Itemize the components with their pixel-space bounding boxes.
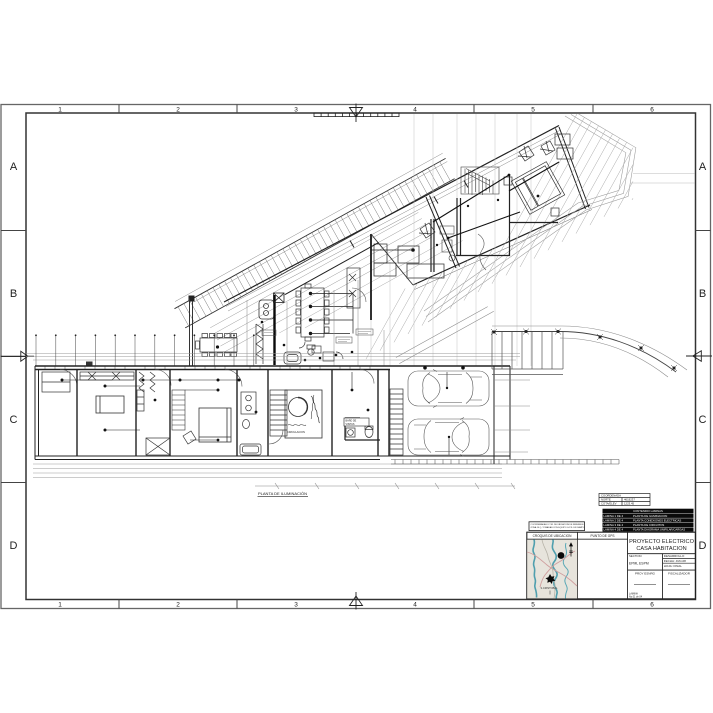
svg-text:VISITAS: VISITAS [346, 423, 355, 426]
svg-text:CIRCULACION: CIRCULACION [287, 430, 305, 434]
svg-text:PLANTA DE ILUMINACION: PLANTA DE ILUMINACION [633, 514, 667, 518]
svg-text:A: A [699, 161, 707, 173]
svg-text:PLANTA DE CIRCUITOS: PLANTA DE CIRCUITOS [633, 523, 664, 527]
svg-text:B: B [10, 288, 17, 300]
svg-text:LAMINA 3 DE 4: LAMINA 3 DE 4 [604, 523, 624, 527]
svg-text:CROQUIS DE UBICACION: CROQUIS DE UBICACION [533, 534, 572, 538]
svg-text:D: D [699, 540, 707, 552]
svg-text:CASA HABITACION: CASA HABITACION [636, 546, 686, 552]
svg-text:2: 2 [176, 107, 180, 114]
svg-text:DESARROLLO: DESARROLLO [664, 554, 685, 558]
svg-text:5: 5 [531, 602, 535, 609]
svg-text:2: 2 [176, 602, 180, 609]
svg-text:C: C [699, 414, 707, 426]
svg-text:D: D [10, 540, 18, 552]
svg-text:PUNTO DE GPS: PUNTO DE GPS [590, 534, 614, 538]
svg-text:COORDENADAS U.T.M. DE UBICACIO: COORDENADAS U.T.M. DE UBICACION DE INMUE… [531, 523, 585, 526]
svg-text:PROY ESNRG: PROY ESNRG [635, 572, 656, 576]
svg-text:1223.45: 1223.45 [624, 502, 635, 506]
svg-text:S.CRISTOBAL: S.CRISTOBAL [540, 586, 558, 590]
svg-text:4: 4 [413, 107, 417, 114]
svg-text:ZONA 14 Q, TOMADAS CON EQUIPO: ZONA 14 Q, TOMADAS CON EQUIPO G.P.S. EN … [531, 526, 585, 529]
svg-text:3: 3 [294, 602, 298, 609]
svg-text:CONTENIDO LAMINAS: CONTENIDO LAMINAS [633, 509, 663, 513]
svg-text:EPML ESPM: EPML ESPM [629, 562, 649, 566]
svg-text:5: 5 [531, 107, 535, 114]
svg-text:FISCALIZADOR: FISCALIZADOR [668, 572, 691, 576]
svg-text:1: 1 [58, 602, 62, 609]
svg-text:C: C [10, 414, 18, 426]
svg-text:B: B [699, 288, 706, 300]
svg-text:SECTION:: SECTION: [629, 554, 642, 558]
svg-text:PROYECTO ELECTRICO: PROYECTO ELECTRICO [629, 539, 695, 545]
svg-text:LAMINA 2 DE 4: LAMINA 2 DE 4 [604, 519, 624, 523]
svg-text:6: 6 [650, 602, 654, 609]
svg-text:PLANTA DIAGRAMA UNIFILAR/CARGA: PLANTA DIAGRAMA UNIFILAR/CARGAS [633, 528, 685, 532]
svg-text:6: 6 [650, 107, 654, 114]
svg-text:FECHA: JUN-08: FECHA: JUN-08 [664, 559, 686, 563]
svg-text:3: 3 [294, 107, 298, 114]
svg-text:PLANTA DE ILUMINACIÓN: PLANTA DE ILUMINACIÓN [258, 491, 307, 496]
svg-text:LAMINA 4 DE 4: LAMINA 4 DE 4 [604, 528, 624, 532]
svg-text:4: 4 [413, 602, 417, 609]
svg-text:LAMINA 1 DE 4: LAMINA 1 DE 4 [604, 514, 624, 518]
svg-text:A: A [10, 161, 18, 173]
svg-text:HOJA: FINAL: HOJA: FINAL [664, 564, 683, 568]
svg-text:1: 1 [58, 107, 62, 114]
svg-text:No.01 de 04: No.01 de 04 [629, 596, 643, 599]
svg-text:COTA/ELEV: COTA/ELEV [601, 502, 617, 506]
svg-text:PLANTA CONEXIONES ELECTRICAS: PLANTA CONEXIONES ELECTRICAS [633, 519, 681, 523]
